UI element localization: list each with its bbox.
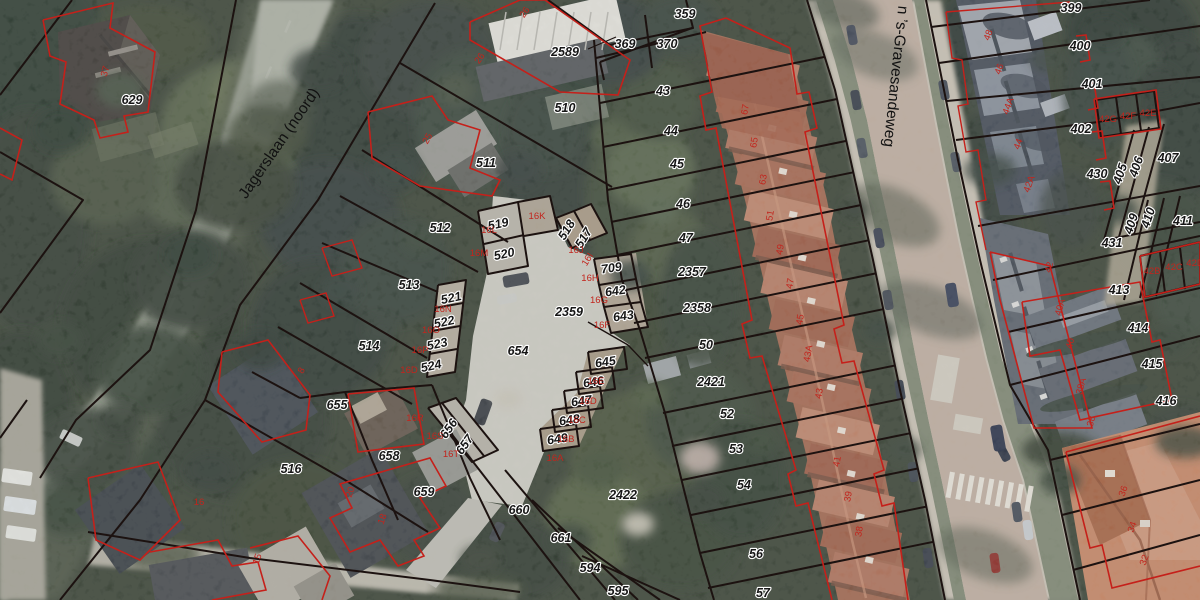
svg-text:411: 411	[1172, 214, 1193, 228]
svg-text:513: 513	[399, 278, 420, 292]
svg-text:51: 51	[764, 209, 777, 221]
svg-text:2422: 2422	[608, 488, 637, 502]
svg-text:53: 53	[729, 442, 743, 456]
svg-text:16D: 16D	[579, 396, 597, 407]
svg-text:16F: 16F	[594, 320, 611, 331]
svg-text:512: 512	[430, 221, 451, 235]
svg-text:643: 643	[612, 308, 635, 325]
svg-text:511: 511	[476, 156, 496, 170]
svg-text:660: 660	[509, 503, 530, 517]
svg-text:516: 516	[281, 462, 303, 476]
svg-text:2359: 2359	[554, 305, 583, 319]
svg-text:658: 658	[379, 449, 400, 463]
svg-text:430: 430	[1086, 167, 1108, 181]
svg-text:54: 54	[737, 478, 751, 492]
svg-text:16D: 16D	[400, 365, 418, 376]
svg-text:414: 414	[1127, 321, 1149, 335]
svg-text:16G: 16G	[590, 295, 608, 306]
svg-text:42D: 42D	[1186, 258, 1200, 269]
svg-text:514: 514	[359, 339, 380, 353]
svg-text:49: 49	[774, 243, 787, 255]
svg-text:16M: 16M	[470, 248, 489, 259]
svg-text:16: 16	[194, 497, 205, 508]
svg-text:41: 41	[831, 455, 844, 467]
svg-text:16S: 16S	[427, 431, 444, 442]
svg-text:16K: 16K	[529, 211, 547, 222]
svg-text:369: 369	[615, 37, 636, 51]
svg-text:431: 431	[1101, 236, 1123, 250]
svg-text:56: 56	[749, 547, 764, 561]
svg-text:57: 57	[756, 586, 771, 600]
svg-text:47: 47	[678, 231, 694, 245]
svg-text:416: 416	[1155, 394, 1178, 408]
svg-text:629: 629	[122, 93, 143, 107]
svg-text:659: 659	[414, 485, 435, 499]
svg-text:399: 399	[1061, 1, 1082, 15]
svg-text:661: 661	[551, 531, 572, 545]
svg-text:16L: 16L	[481, 225, 497, 236]
svg-text:16P: 16P	[412, 345, 429, 356]
svg-text:46: 46	[675, 197, 691, 211]
svg-text:52: 52	[720, 407, 734, 421]
svg-text:42G: 42G	[1099, 114, 1117, 125]
svg-text:16J: 16J	[568, 245, 584, 256]
svg-text:401: 401	[1081, 77, 1103, 91]
svg-text:415: 415	[1141, 357, 1164, 371]
svg-text:43: 43	[813, 387, 826, 399]
svg-text:42B: 42B	[1144, 266, 1161, 277]
svg-text:594: 594	[580, 561, 601, 575]
svg-text:709: 709	[600, 260, 623, 277]
svg-text:413: 413	[1108, 283, 1130, 297]
svg-text:655: 655	[327, 398, 349, 412]
svg-text:370: 370	[657, 37, 678, 51]
svg-text:2357: 2357	[677, 265, 707, 279]
svg-text:42F: 42F	[1120, 111, 1137, 122]
svg-text:654: 654	[508, 344, 529, 358]
svg-text:2421: 2421	[696, 375, 725, 389]
svg-text:359: 359	[675, 7, 696, 21]
svg-text:16H: 16H	[581, 273, 599, 284]
svg-text:45: 45	[794, 313, 807, 325]
svg-text:16A: 16A	[547, 453, 565, 464]
svg-text:45: 45	[669, 157, 685, 171]
svg-text:16N: 16N	[434, 304, 452, 315]
svg-text:42E: 42E	[1140, 108, 1157, 119]
svg-text:16C: 16C	[568, 415, 586, 426]
svg-text:38: 38	[853, 525, 866, 537]
svg-text:402: 402	[1070, 122, 1092, 136]
svg-text:43: 43	[655, 84, 670, 98]
svg-text:39: 39	[842, 490, 855, 502]
svg-text:595: 595	[608, 584, 630, 598]
svg-text:400: 400	[1069, 39, 1091, 53]
svg-text:50: 50	[699, 338, 713, 352]
svg-text:65: 65	[748, 136, 761, 148]
svg-text:16R: 16R	[406, 413, 424, 424]
svg-text:42C: 42C	[1165, 262, 1183, 273]
svg-text:44: 44	[663, 124, 678, 138]
svg-text:2589: 2589	[550, 45, 579, 59]
svg-text:67: 67	[739, 103, 752, 115]
svg-text:2358: 2358	[682, 301, 711, 315]
svg-text:407: 407	[1157, 151, 1180, 165]
svg-text:16B: 16B	[558, 434, 575, 445]
svg-text:510: 510	[555, 101, 576, 115]
svg-text:16O: 16O	[422, 325, 440, 336]
svg-text:16T: 16T	[443, 449, 460, 460]
svg-text:16E: 16E	[588, 376, 605, 387]
svg-text:47: 47	[784, 277, 797, 289]
svg-text:63: 63	[757, 173, 770, 185]
